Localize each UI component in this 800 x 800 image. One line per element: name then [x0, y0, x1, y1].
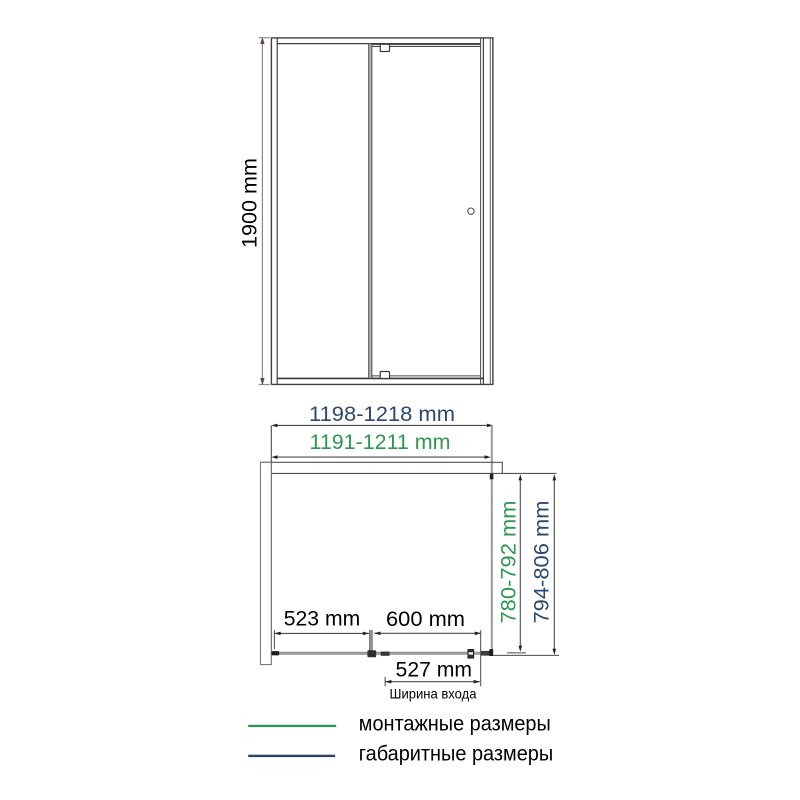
svg-text:Ширина входа: Ширина входа: [390, 686, 477, 702]
svg-text:1900 mm: 1900 mm: [239, 158, 262, 248]
svg-text:1198-1218 mm: 1198-1218 mm: [309, 402, 455, 426]
svg-text:габаритные размеры: габаритные размеры: [359, 743, 553, 766]
svg-text:монтажные размеры: монтажные размеры: [359, 713, 551, 736]
svg-text:1191-1211 mm: 1191-1211 mm: [310, 431, 451, 454]
svg-text:523 mm: 523 mm: [284, 608, 361, 631]
svg-text:527 mm: 527 mm: [396, 659, 473, 682]
svg-text:794-806 mm: 794-806 mm: [531, 501, 554, 624]
svg-text:780-792 mm: 780-792 mm: [498, 501, 521, 624]
svg-text:600 mm: 600 mm: [386, 608, 465, 631]
